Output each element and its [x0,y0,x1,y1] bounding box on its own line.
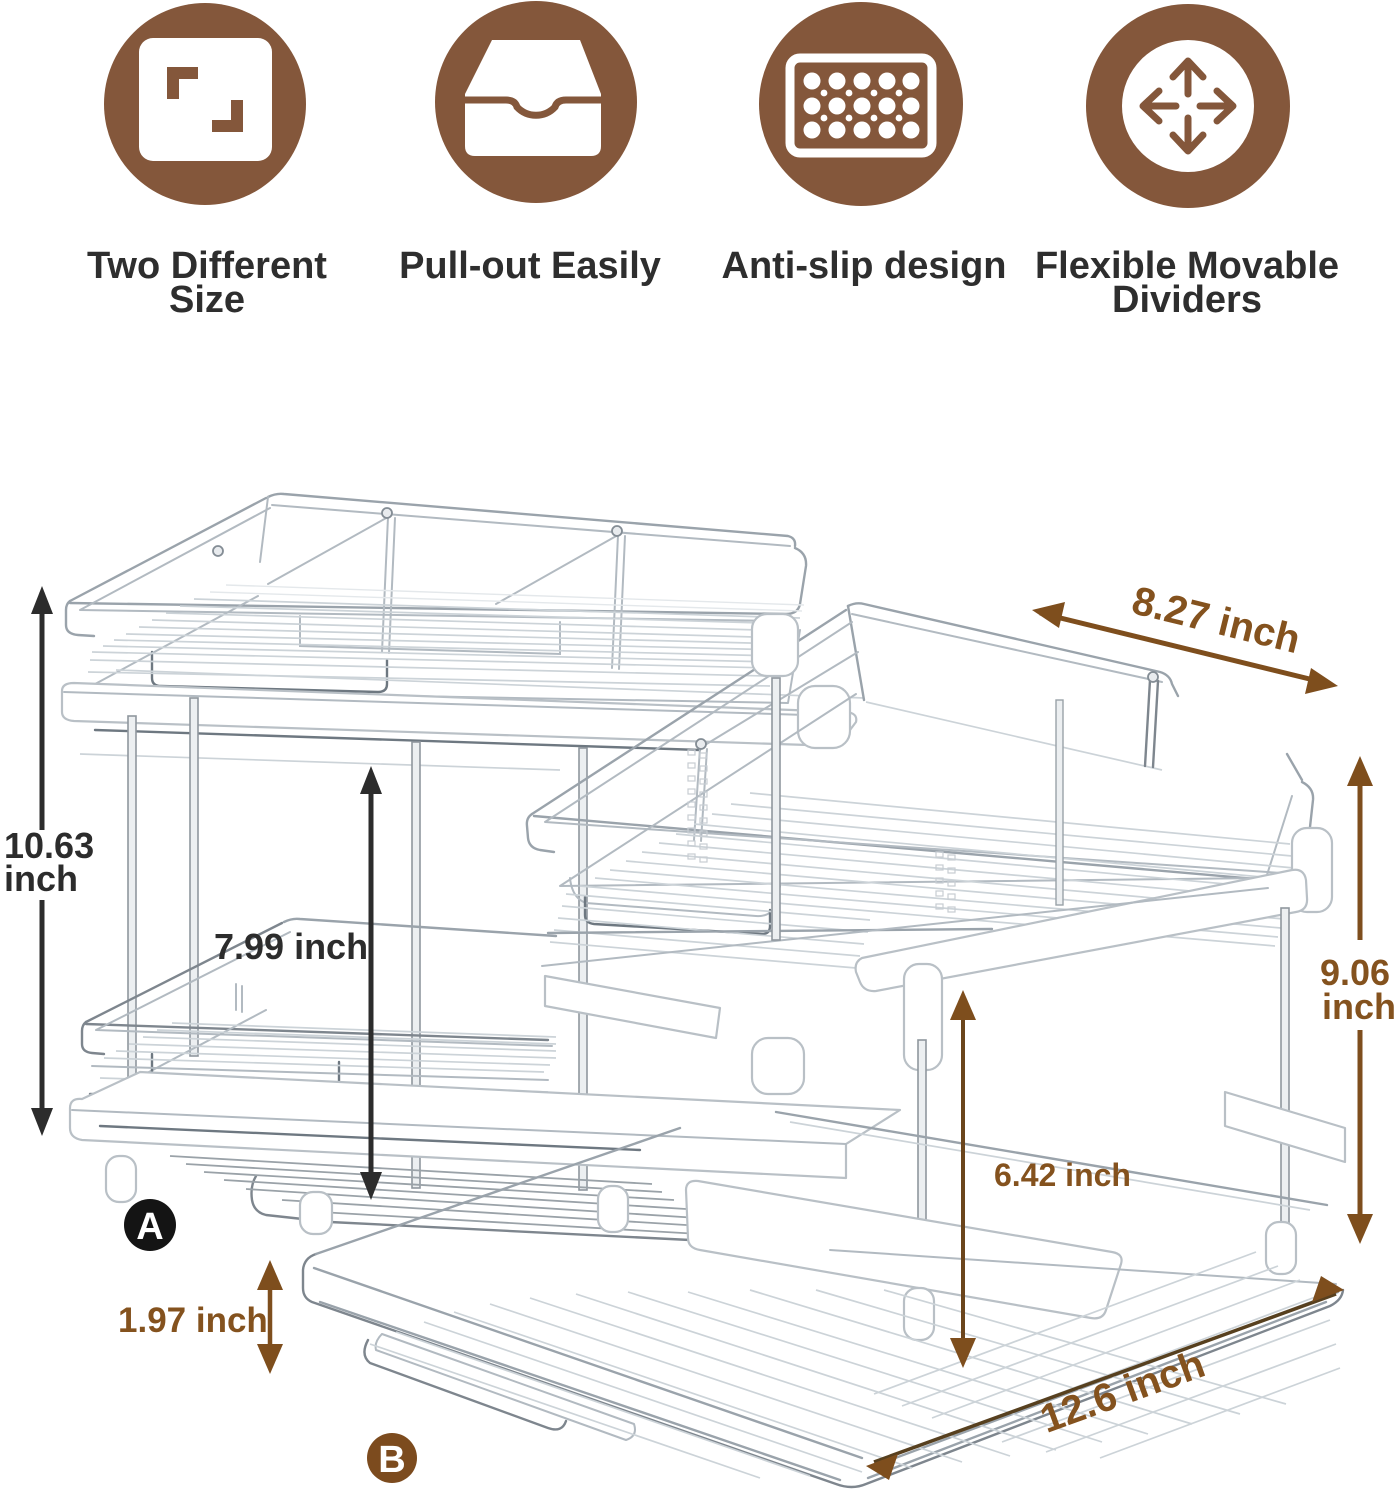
svg-text:6.42 inch: 6.42 inch [994,1157,1131,1193]
svg-text:Dividers: Dividers [1112,279,1262,321]
svg-text:Anti-slip design: Anti-slip design [722,245,1007,287]
svg-text:inch: inch [1322,986,1395,1027]
svg-text:7.99 inch: 7.99 inch [214,926,368,967]
svg-text:B: B [378,1439,405,1481]
svg-text:Pull-out Easily: Pull-out Easily [399,245,661,287]
svg-text:Size: Size [169,279,245,321]
svg-text:1.97 inch: 1.97 inch [118,1301,268,1340]
svg-text:inch: inch [4,858,78,899]
svg-text:A: A [136,1206,163,1248]
